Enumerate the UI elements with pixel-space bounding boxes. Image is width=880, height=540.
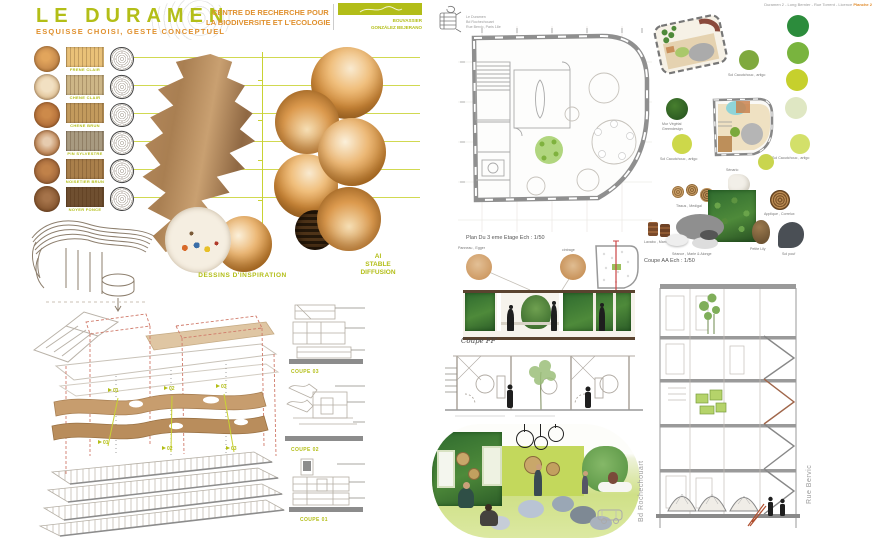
wood-plank-swatch — [66, 103, 104, 123]
signature-box — [338, 3, 422, 15]
person-seated — [608, 472, 618, 484]
marker-flag-icon — [162, 446, 166, 450]
section-marker-01: 01 — [108, 388, 119, 395]
wood-plank-swatch — [66, 75, 104, 95]
ai-caption-line2: STABLE — [352, 261, 404, 268]
person-standing — [534, 470, 542, 496]
org-title-line1: CENTRE DE RECHERCHE POUR — [212, 9, 329, 18]
sheet-header-note: Duramen 2 - Long Bernier - Rue Torrent -… — [700, 3, 872, 8]
person-head — [600, 303, 604, 307]
inspiration-caption: DESSINS D'INSPIRATION — [170, 272, 315, 279]
marker-flag-icon — [164, 386, 168, 390]
person-head — [552, 301, 556, 305]
hanging-ring-light — [534, 436, 548, 450]
axonometric-drawing-svg — [26, 306, 286, 540]
person-silhouette — [551, 305, 557, 331]
line-section-svg — [445, 346, 643, 420]
palette-color-1 — [787, 15, 809, 37]
wood-disc-sample — [672, 186, 684, 198]
ring-cord — [524, 424, 525, 432]
tissus-label: Tissus , Medigal — [676, 204, 702, 208]
person-seated — [480, 510, 498, 526]
greenery-panel — [563, 293, 631, 331]
ring-cord — [555, 424, 556, 428]
section-marker-02b: 02 — [162, 446, 173, 453]
growth-ring-icon — [107, 156, 137, 186]
wood-label: CHENE BRUN — [60, 124, 110, 129]
applique-label: Applique , Correlux — [764, 212, 795, 216]
coupe-label: COUPE 02 — [291, 448, 319, 454]
marker-flag-icon — [216, 384, 220, 388]
floor-pouf-dark — [778, 222, 804, 248]
board-subtitle: ESQUISSE CHOISI, GESTE CONCEPTUEL — [36, 28, 225, 37]
sol-artigo-swatch-3 — [790, 134, 810, 154]
sample-label-1: Panneau , Egger — [458, 246, 485, 250]
coupe-drawing-03 — [287, 302, 367, 366]
wood-egg-sample — [752, 220, 770, 244]
sample-label-2: cintrage — [562, 248, 575, 252]
building-section-svg — [646, 276, 808, 540]
mur-vegetal-label-1: Mur Végétal — [662, 122, 681, 126]
person-head — [463, 482, 470, 489]
pebble-white — [666, 234, 688, 246]
window-left-2 — [482, 446, 502, 486]
planche-number: Planche 2 — [853, 2, 872, 7]
marker-flag-icon — [226, 446, 230, 450]
mur-vegetal-label-2: Greendesign — [662, 127, 683, 131]
bean-bag — [518, 500, 544, 518]
sol-artigo-swatch-1 — [739, 50, 759, 70]
rattan-disc — [546, 462, 560, 476]
header-note-text: Duramen 2 - Long Bernier - Rue Torrent -… — [764, 2, 852, 7]
key-plan-svg — [590, 240, 644, 294]
wood-log-photo — [34, 102, 60, 128]
wood-log-photo — [34, 158, 60, 184]
sol-artigo-label-1: Sol Caoutchouc , artigo — [728, 73, 765, 77]
person-head — [536, 464, 542, 470]
hanging-ring-light — [548, 426, 564, 442]
ring-cord — [540, 424, 541, 437]
wood-label: NOISETIER BRUN — [60, 180, 110, 185]
sol-artigo-swatch-2 — [672, 134, 692, 154]
wood-plank-swatch — [66, 131, 104, 151]
sketch-inspiration-photo — [165, 207, 231, 273]
mur-vegetal-swatch — [666, 98, 688, 120]
coupe-drawing-02 — [283, 378, 367, 444]
wood-disc-sample — [686, 184, 698, 196]
axon-cutaway-plan-svg — [648, 10, 736, 82]
board-title: LE DURAMEN — [36, 5, 229, 28]
material-line — [134, 57, 420, 58]
coupe-ff-caption: Coupe FF' — [461, 337, 498, 345]
planter-sample — [648, 222, 658, 236]
section-marker-02: 02 — [164, 386, 175, 393]
sol-pouf-label: Sol pouf — [782, 252, 795, 256]
person-head — [509, 305, 513, 309]
window-left — [437, 450, 455, 488]
small-floor-plan-svg — [706, 92, 778, 162]
hanging-ring-light — [516, 430, 534, 448]
pebble-dark — [700, 230, 718, 240]
growth-ring-icon — [107, 72, 136, 101]
growth-ring-icon — [110, 47, 134, 71]
street-label-left: Bd Rochechouart — [638, 428, 646, 522]
coupe-label: COUPE 01 — [300, 518, 328, 524]
coupe-drawing-01 — [287, 456, 367, 516]
marker-flag-icon — [108, 388, 112, 392]
wood-label: CHENE CLAIR — [60, 96, 110, 101]
header-divider — [333, 4, 334, 30]
growth-ring-icon — [106, 127, 137, 158]
wood-label: FRENE CLAIR — [60, 68, 110, 73]
palette-color-2 — [787, 42, 809, 64]
coupe-label: COUPE 03 — [291, 370, 319, 376]
wood-plank-swatch — [66, 47, 104, 67]
marker-flag-icon — [98, 440, 102, 444]
sol-artigo-label-2: Sol Caoutchouc , artigo — [660, 157, 697, 161]
org-title-line2: LA BIODIVERSITE ET L'ECOLOGIE — [206, 19, 330, 28]
greenery-panel — [465, 293, 495, 331]
wood-log-photo — [34, 130, 60, 156]
senario-label: Sénario — [726, 168, 738, 172]
person-silhouette — [507, 309, 514, 331]
log-slice-sample — [770, 190, 790, 210]
rattan-disc — [456, 452, 470, 466]
section-marker-03b: 03 — [226, 446, 237, 453]
person-seated — [458, 488, 474, 508]
ai-caption-line1: AI — [352, 253, 404, 260]
ai-caption-line3: DIFFUSION — [352, 269, 404, 276]
window-mullion — [559, 293, 563, 331]
wood-plank-swatch — [66, 159, 104, 179]
person-standing — [582, 476, 588, 494]
wood-log-photo — [34, 74, 60, 100]
growth-ring-icon — [108, 101, 136, 129]
seance-label: Séance , Marle & Alonge — [672, 252, 712, 256]
signature-icon — [338, 4, 422, 16]
wood-log-photo — [34, 46, 60, 72]
rattan-disc — [468, 468, 480, 480]
logo-text-line1: Le Duramen — [466, 15, 486, 19]
wood-label: PIN SYLVESTRE — [60, 152, 110, 157]
street-label-right: Rue Bervic — [806, 432, 814, 504]
coupe-aa-caption: Coupe AA Ech : 1/50 — [644, 258, 695, 264]
sample-swatch-1 — [466, 254, 492, 280]
inspiration-photo — [318, 118, 386, 186]
window-mullion — [593, 293, 596, 331]
sample-swatch-2 — [560, 254, 586, 280]
person-silhouette — [599, 307, 605, 331]
main-floor-plan-svg — [452, 22, 657, 237]
palette-color-4 — [785, 97, 807, 119]
petite-lily-label: Petite Lily — [750, 247, 766, 251]
author-name-2: GONZÁLEZ BEJERANO — [338, 25, 422, 30]
palette-color-3 — [786, 69, 808, 91]
concept-sketch-svg — [26, 208, 161, 316]
author-name-1: BOUVASSIER — [338, 18, 422, 23]
person-head — [583, 471, 588, 476]
wood-plank-swatch — [66, 187, 104, 207]
window-mullion — [497, 293, 501, 331]
person-head — [485, 504, 492, 511]
section-marker-01b: 01 — [98, 440, 109, 447]
inspiration-photo — [317, 187, 381, 251]
vehicle-sketch-icon — [596, 506, 626, 526]
presentation-board: LE DURAMEN ESQUISSE CHOISI, GESTE CONCEP… — [0, 0, 880, 540]
window-mullion — [613, 293, 616, 331]
sol-artigo-swatch-4 — [758, 154, 774, 170]
sol-artigo-label-3: Sol Caoutchouc , artigo — [772, 156, 809, 160]
rendered-section-strip — [463, 290, 635, 340]
section-marker-03: 03 — [216, 384, 227, 391]
